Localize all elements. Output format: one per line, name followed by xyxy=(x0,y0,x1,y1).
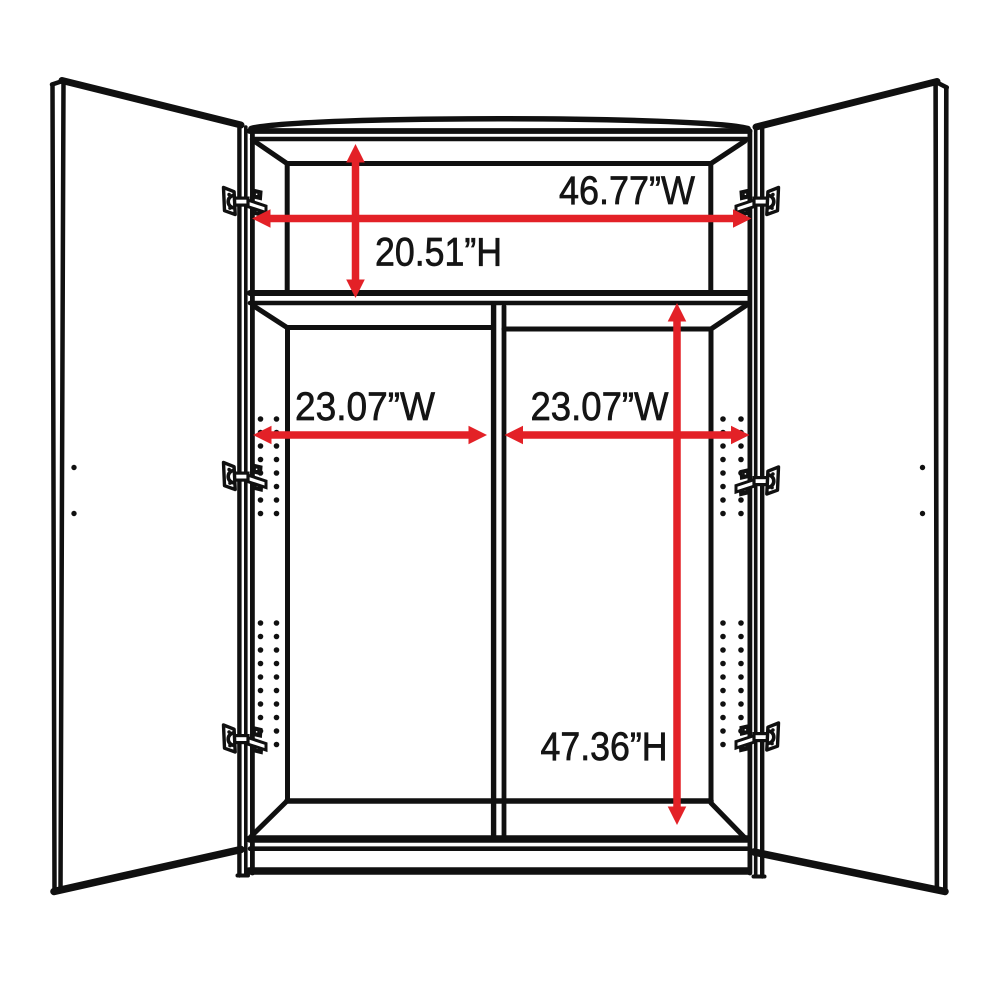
svg-text:23.07”W: 23.07”W xyxy=(531,385,669,429)
svg-text:20.51”H: 20.51”H xyxy=(375,231,502,275)
svg-text:47.36”H: 47.36”H xyxy=(541,725,668,769)
svg-text:23.07”W: 23.07”W xyxy=(295,385,435,429)
svg-text:46.77”W: 46.77”W xyxy=(559,169,695,213)
